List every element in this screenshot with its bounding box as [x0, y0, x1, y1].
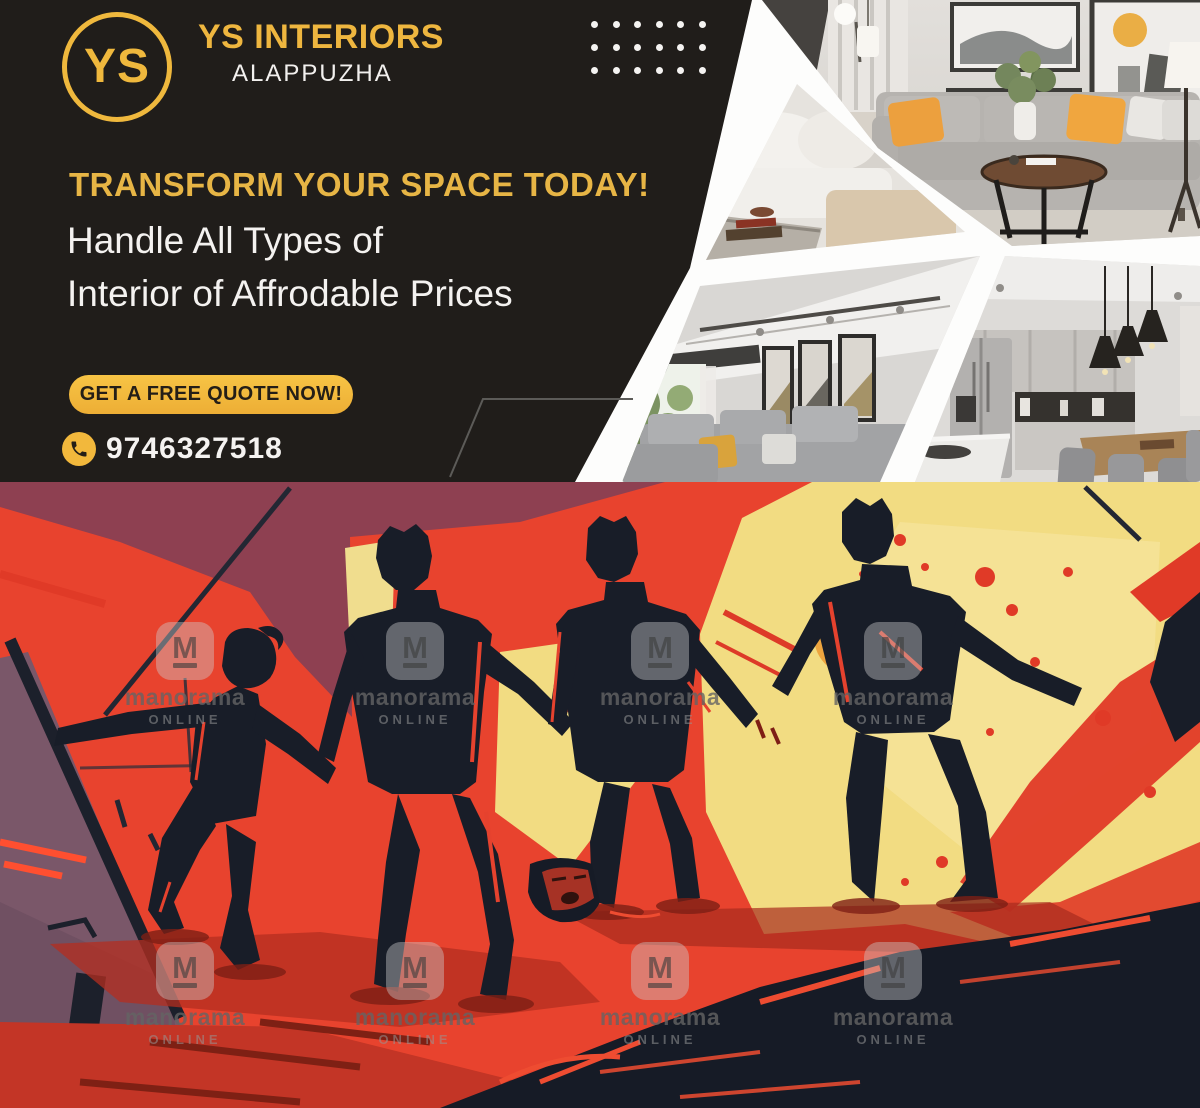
dot	[677, 44, 684, 51]
phone-icon	[62, 432, 96, 466]
poster-composite: YS YS INTERIORS ALAPPUZHA TRANSFORM YOUR…	[0, 0, 1200, 1108]
ad-subheadline-line2: Interior of Affrodable Prices	[67, 273, 513, 315]
get-quote-label: GET A FREE QUOTE NOW!	[80, 383, 343, 406]
dot-grid-decoration	[591, 21, 706, 74]
get-quote-button[interactable]: GET A FREE QUOTE NOW!	[69, 375, 353, 414]
dot	[656, 21, 663, 28]
dot	[699, 44, 706, 51]
dot	[634, 44, 641, 51]
news-illustration: M manorama ONLINE M manorama ONLINE M ma…	[0, 482, 1200, 1108]
ad-headline: TRANSFORM YOUR SPACE TODAY!	[69, 166, 650, 204]
dot	[634, 21, 641, 28]
dot	[591, 67, 598, 74]
brand-name: YS INTERIORS	[198, 18, 444, 57]
dot	[656, 44, 663, 51]
dot	[699, 21, 706, 28]
dot	[591, 44, 598, 51]
ys-logo-monogram: YS	[84, 39, 150, 94]
dot	[677, 67, 684, 74]
ad-subheadline-line1: Handle All Types of	[67, 220, 383, 262]
interiors-ad-banner: YS YS INTERIORS ALAPPUZHA TRANSFORM YOUR…	[0, 0, 1200, 482]
dot	[677, 21, 684, 28]
illustration-art	[0, 482, 1200, 1108]
phone-number: 9746327518	[106, 432, 283, 466]
dot	[699, 67, 706, 74]
dot	[613, 21, 620, 28]
dot	[656, 67, 663, 74]
phone-contact[interactable]: 9746327518	[62, 432, 283, 466]
ys-logo: YS	[62, 12, 172, 122]
dot	[613, 67, 620, 74]
brand-location: ALAPPUZHA	[232, 60, 393, 88]
dot	[613, 44, 620, 51]
dot	[634, 67, 641, 74]
dot	[591, 21, 598, 28]
